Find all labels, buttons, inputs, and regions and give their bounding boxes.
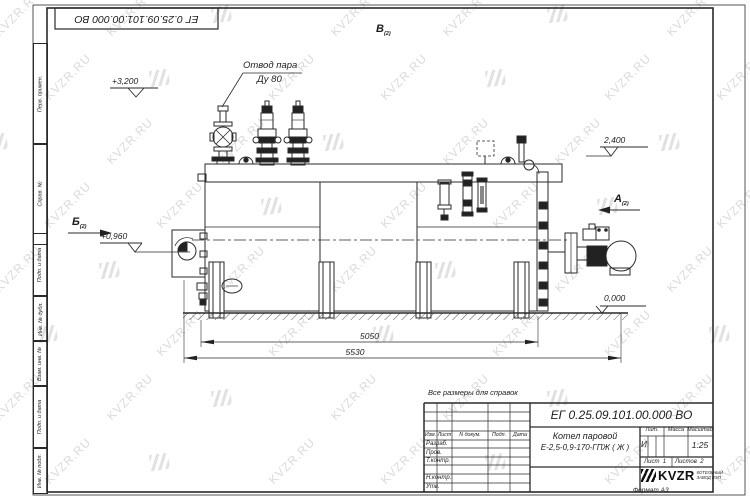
col-list: Лист	[437, 433, 452, 439]
col-izm: Изм.	[424, 433, 437, 439]
product-name-line1: Котел паровой	[532, 432, 638, 441]
steam-outlet-label: Отвод пара	[243, 61, 297, 71]
margin-box-5: Подп. и дата	[33, 385, 48, 449]
col-ndokum: N докум.	[452, 433, 488, 439]
view-label-right: А(2)	[614, 194, 629, 208]
col-podp: Подп.	[488, 433, 510, 439]
kvzr-logo-text: KVZR	[658, 468, 695, 483]
margin-box-2: Подп. и дата	[33, 233, 48, 297]
view-label-top: В(2)	[376, 24, 391, 38]
doc-number: ЕГ 0.25.09.101.00.000 ВО	[530, 403, 713, 427]
kvzr-logo-icon	[641, 469, 656, 482]
margin-box-3: Инв. № дубл.	[33, 295, 48, 342]
row-tkontr: Т.контр.	[426, 458, 450, 464]
elevation-ground: 0,000	[604, 294, 625, 303]
elevation-right-upper: 2,400	[604, 136, 625, 145]
view-label-left: Б(2)	[72, 217, 87, 231]
scale-value: 1:25	[688, 441, 712, 450]
row-prov: Пров.	[426, 450, 442, 456]
row-razrab: Разраб.	[426, 441, 448, 447]
product-name-line2: Е-2,5-0,9-170-ГПЖ ( Ж )	[530, 444, 640, 452]
col-data: Дата	[510, 433, 530, 439]
margin-box-0: Перв. примен.	[33, 43, 48, 145]
dimension-5530: 5530	[184, 348, 526, 357]
row-nkontr: Н.контр.	[426, 475, 451, 481]
margin-box-6: Инв. № подл.	[33, 447, 48, 494]
dimension-5050: 5050	[201, 332, 538, 341]
sheet-number: Лист 1	[644, 459, 666, 465]
top-stamp: ЕГ 0.25.09.101.00.000 ВО	[55, 8, 218, 29]
drawing-sheet: KVZR.RUKVZR.RUKVZR.RUKVZR.RUKVZR.RUKVZR.…	[0, 0, 750, 500]
elevation-top-left: +3,200	[112, 77, 138, 86]
steam-outlet-dn-label: Ду 80	[257, 75, 282, 85]
lit-header: Лит.	[640, 428, 664, 434]
margin-box-4: Взам. инв. №	[33, 340, 48, 387]
margin-box-1: Справ. №	[33, 143, 48, 245]
elevation-left-mid: +0,960	[101, 232, 127, 241]
sheets-total: Листов 2	[675, 459, 704, 465]
format-label: Формат А3	[633, 488, 669, 495]
row-utv: Утв.	[426, 484, 440, 490]
massa-header: Масса	[664, 428, 688, 434]
kvzr-logo: KVZR КОТЕЛЬНЫЙ ЗАВОД РЭП	[641, 467, 712, 484]
kvzr-logo-caption: КОТЕЛЬНЫЙ ЗАВОД РЭП	[697, 471, 723, 481]
lit-value: И	[640, 441, 648, 449]
masshtab-header: Масштаб	[687, 428, 713, 434]
reference-note: Все размеры для справок	[428, 389, 518, 397]
